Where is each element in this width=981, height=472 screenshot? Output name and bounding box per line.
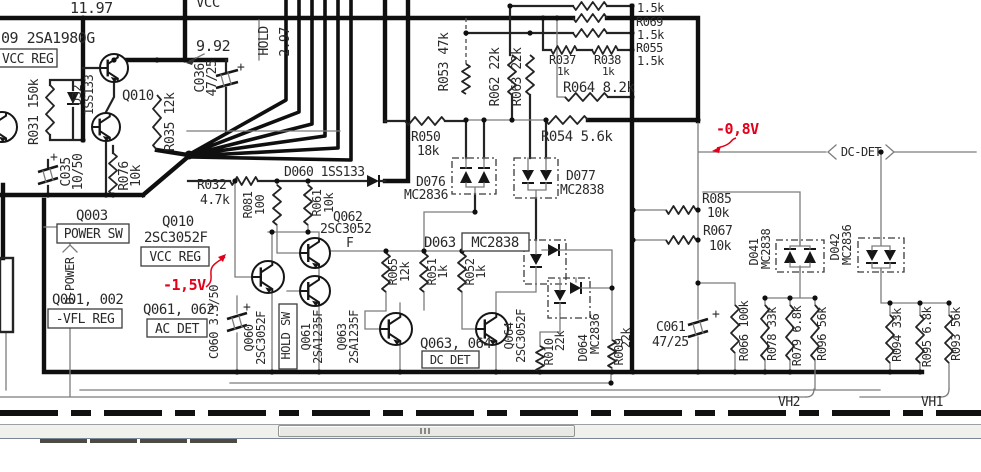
label-q010-type: 2SC3052F xyxy=(144,230,208,246)
voltage-1197: 11.97 xyxy=(70,0,113,17)
label-q063-type: 2SA1235F xyxy=(347,310,361,364)
label-r031: R031 150k xyxy=(27,78,42,145)
label-r078: R078 33k xyxy=(765,306,779,361)
polarity-c035: + xyxy=(50,150,58,165)
label-d063: D063 xyxy=(424,235,456,251)
label-q003: Q003 xyxy=(76,208,108,224)
label-r096: R096 56k xyxy=(815,306,829,361)
diode-pack-d042 xyxy=(858,238,904,272)
label-r093: R093 56k xyxy=(949,306,963,361)
transistor-q063 xyxy=(380,313,412,345)
label-c036-val: 47/25 xyxy=(205,60,220,97)
diode-pack-d077 xyxy=(514,158,558,198)
label-c035-val: 10/50 xyxy=(71,154,86,191)
label-r064: R064 8.2k xyxy=(563,80,635,96)
label-q061-type: 2SA1235F xyxy=(311,310,325,364)
diode-pack-d064 xyxy=(548,278,590,318)
label-q009: 09 2SA1980G xyxy=(1,29,95,47)
transistor-q060 xyxy=(252,261,284,293)
polarity-c060: + xyxy=(243,300,251,315)
label-q064-type: 2SC3052F xyxy=(514,309,528,363)
net-label-vh2: VH2 xyxy=(778,395,800,410)
schematic-drawing: DC-DET D-POWER 11.97 VCC 09 2SA1980G VCC… xyxy=(0,0,981,472)
diode-pack-d076 xyxy=(452,158,496,194)
transistor-partial-left xyxy=(0,112,17,142)
label-q062-type: 2SC3052 xyxy=(320,222,371,237)
label-r061-val: 10k xyxy=(322,192,336,213)
label-r067: R067 xyxy=(703,224,732,239)
cap-c035 xyxy=(38,166,58,184)
label-r051-val: 1k xyxy=(436,264,450,279)
left-edge-box xyxy=(0,258,13,332)
label-r050: R050 xyxy=(411,130,440,145)
label-r035: R035 12k xyxy=(163,92,178,151)
block-power-sw: POWER SW xyxy=(64,227,123,242)
label-d042-type: MC2836 xyxy=(840,225,854,266)
label-q010: Q010 xyxy=(162,214,194,230)
label-r032: R032 xyxy=(197,178,226,193)
label-r050-val: 18k xyxy=(417,144,440,159)
label-r079: R079 6.8k xyxy=(790,304,804,366)
label-d076-type: MC2836 xyxy=(404,188,448,203)
block-ac-det: AC DET xyxy=(155,322,200,337)
label-q010-top: Q010 xyxy=(122,88,154,104)
diode-d060 xyxy=(367,175,379,187)
schematic-viewer: DC-DET D-POWER 11.97 VCC 09 2SA1980G VCC… xyxy=(0,0,981,472)
label-r085: R085 xyxy=(702,192,731,207)
label-r076-val: 10k xyxy=(129,164,144,187)
voltage-992: 9.92 xyxy=(196,37,230,55)
polarity-c036: + xyxy=(237,60,245,75)
block-vcc-reg: VCC REG xyxy=(149,250,201,265)
red-note-neg08: -0,8V xyxy=(716,120,759,138)
capacitors xyxy=(38,70,708,337)
scrollbar-grip-icon xyxy=(420,428,430,434)
label-r065-val: 12k xyxy=(398,261,412,282)
label-d041-type: MC2838 xyxy=(759,229,773,270)
label-r066: R066 100k xyxy=(737,299,751,361)
label-r-unnamed-val: 1.5k xyxy=(637,1,665,15)
net-label-dc-det: DC-DET xyxy=(841,145,882,159)
label-q060-type: 2SC3052F xyxy=(254,311,268,365)
label-c061: C061 xyxy=(656,320,685,335)
label-r095: R095 6.8k xyxy=(920,305,934,367)
red-arrow-neg08 xyxy=(717,138,736,148)
label-q001: Q001, 002 xyxy=(52,292,123,308)
taskbar-fragment-1[interactable] xyxy=(40,439,87,443)
polarity-c061: + xyxy=(712,307,720,322)
label-r081-val: 100 xyxy=(253,195,267,215)
voltage-297: 2.97 xyxy=(278,27,293,56)
diode-pack-d041 xyxy=(776,240,824,272)
label-d060: D060 1SS133 xyxy=(284,165,365,180)
taskbar-fragment-3[interactable] xyxy=(140,439,187,443)
label-r009-val: 22k xyxy=(619,327,633,348)
label-r032-val: 4.7k xyxy=(200,193,230,208)
label-r038-val: 1k xyxy=(602,65,615,78)
transistor-q010b xyxy=(92,113,120,142)
label-d064-type: MC2836 xyxy=(588,314,602,355)
label-r055: R055 xyxy=(636,41,663,55)
block-dc-det: DC DET xyxy=(430,353,471,367)
label-q061-062: Q061, 062 xyxy=(143,302,214,318)
label-d077-type: MC2838 xyxy=(560,183,604,198)
label-d063-type: MC2838 xyxy=(471,235,519,251)
cap-c061 xyxy=(688,319,708,337)
block-vcc-reg-top: VCC REG xyxy=(2,52,54,67)
label-r063: R063 22k xyxy=(510,47,525,106)
block-hold-sw: HOLD SW xyxy=(279,311,293,359)
label-r067-val: 10k xyxy=(709,239,732,254)
medium-wires xyxy=(48,6,632,240)
net-flag-dc-det: DC-DET xyxy=(828,145,894,159)
block-vfl-reg: -VFL REG xyxy=(56,312,115,327)
taskbar-fragment-2[interactable] xyxy=(90,439,137,443)
transistor-q062 xyxy=(300,238,330,268)
label-q062-suffix: F xyxy=(346,236,354,251)
net-label-hold: HOLD xyxy=(257,26,272,56)
label-r069: R069 xyxy=(636,15,663,29)
net-label-vh1: VH1 xyxy=(921,395,943,410)
label-r055-val: 1.5k xyxy=(637,54,665,68)
transistor-q061 xyxy=(300,276,330,306)
label-d077: D077 xyxy=(566,169,595,184)
label-r069-val: 1.5k xyxy=(637,28,665,42)
label-r054: R054 5.6k xyxy=(541,129,613,145)
label-r094: R094 33k xyxy=(890,307,904,362)
red-note-neg15: -1,5V xyxy=(163,276,206,294)
label-r062: R062 22k xyxy=(488,47,503,106)
label-c060: C060 3.3/50 xyxy=(207,285,221,359)
label-q063-064: Q063, 064 xyxy=(420,336,491,352)
net-label-vcc: VCC xyxy=(196,0,220,11)
label-r052-val: 1k xyxy=(474,264,488,279)
label-r085-val: 10k xyxy=(707,206,730,221)
taskbar-fragment-4[interactable] xyxy=(190,439,237,443)
label-r037-val: 1k xyxy=(557,65,570,78)
label-r053: R053 47k xyxy=(437,32,452,91)
label-c061-val: 47/25 xyxy=(652,335,689,350)
label-d032-type: 1SS133 xyxy=(82,75,96,116)
label-r010-val: 22k xyxy=(553,330,567,351)
